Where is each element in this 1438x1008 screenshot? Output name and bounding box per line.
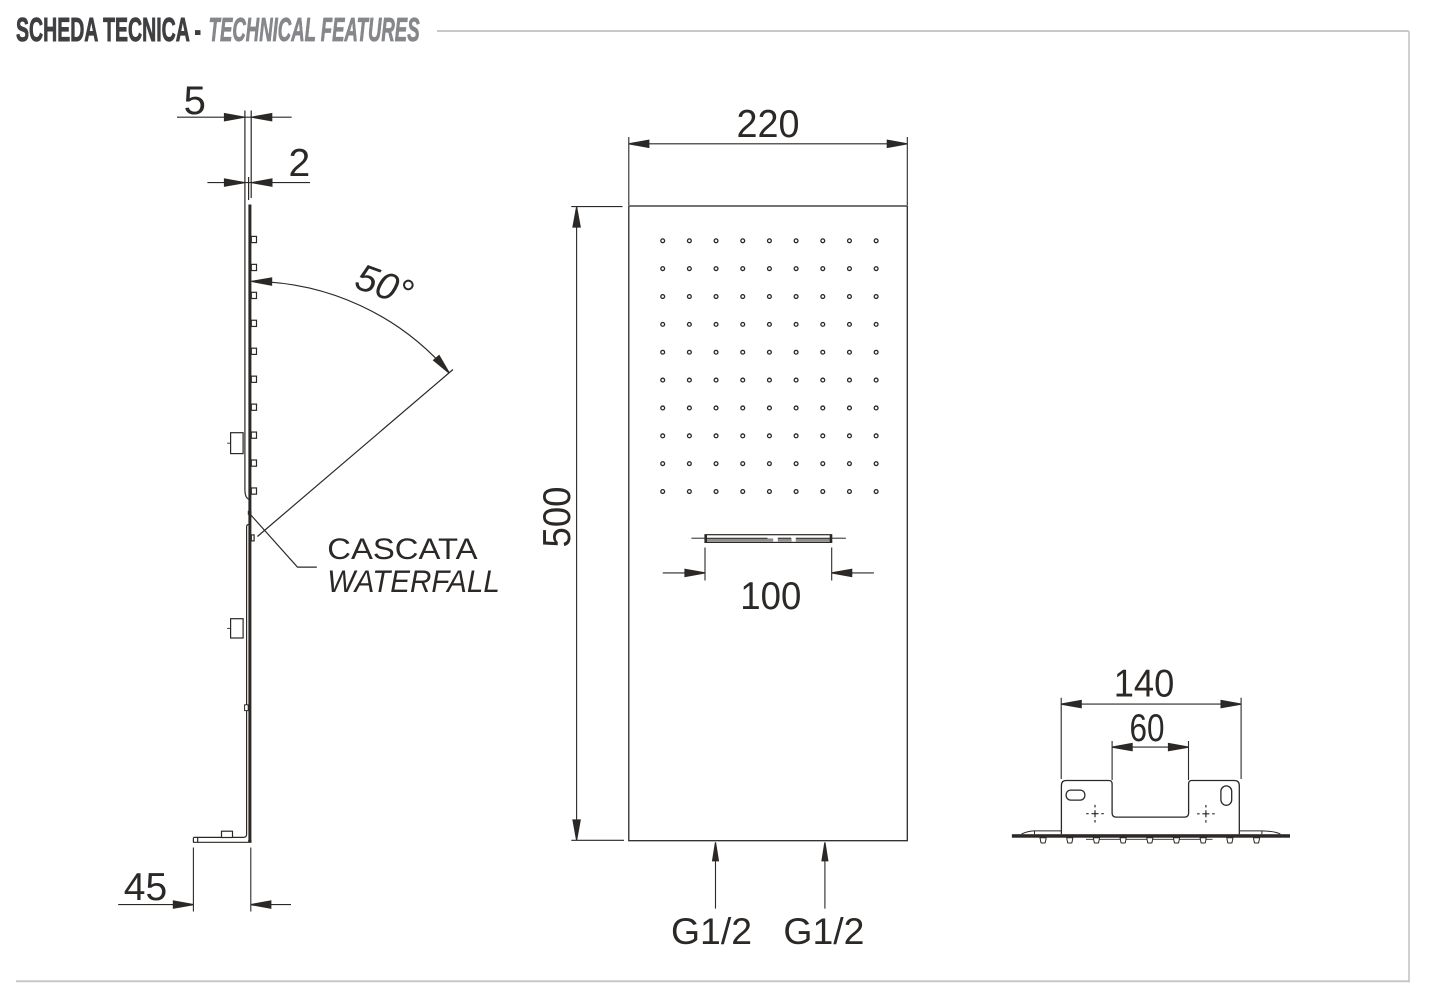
svg-text:G1/2: G1/2 <box>783 911 864 952</box>
svg-text:SCHEDA TECNICA -: SCHEDA TECNICA - <box>16 11 201 48</box>
svg-text:2: 2 <box>288 142 310 185</box>
svg-text:G1/2: G1/2 <box>671 911 752 952</box>
svg-text:TECHNICAL FEATURES: TECHNICAL FEATURES <box>209 11 420 48</box>
svg-text:140: 140 <box>1114 663 1175 706</box>
svg-text:60: 60 <box>1130 707 1165 750</box>
svg-text:WATERFALL: WATERFALL <box>327 563 500 599</box>
svg-text:100: 100 <box>740 575 801 618</box>
svg-text:500: 500 <box>536 487 579 548</box>
svg-text:45: 45 <box>124 866 167 909</box>
svg-text:CASCATA: CASCATA <box>327 533 477 566</box>
svg-text:50°: 50° <box>350 256 418 315</box>
svg-text:5: 5 <box>184 79 206 123</box>
svg-text:220: 220 <box>737 103 800 146</box>
